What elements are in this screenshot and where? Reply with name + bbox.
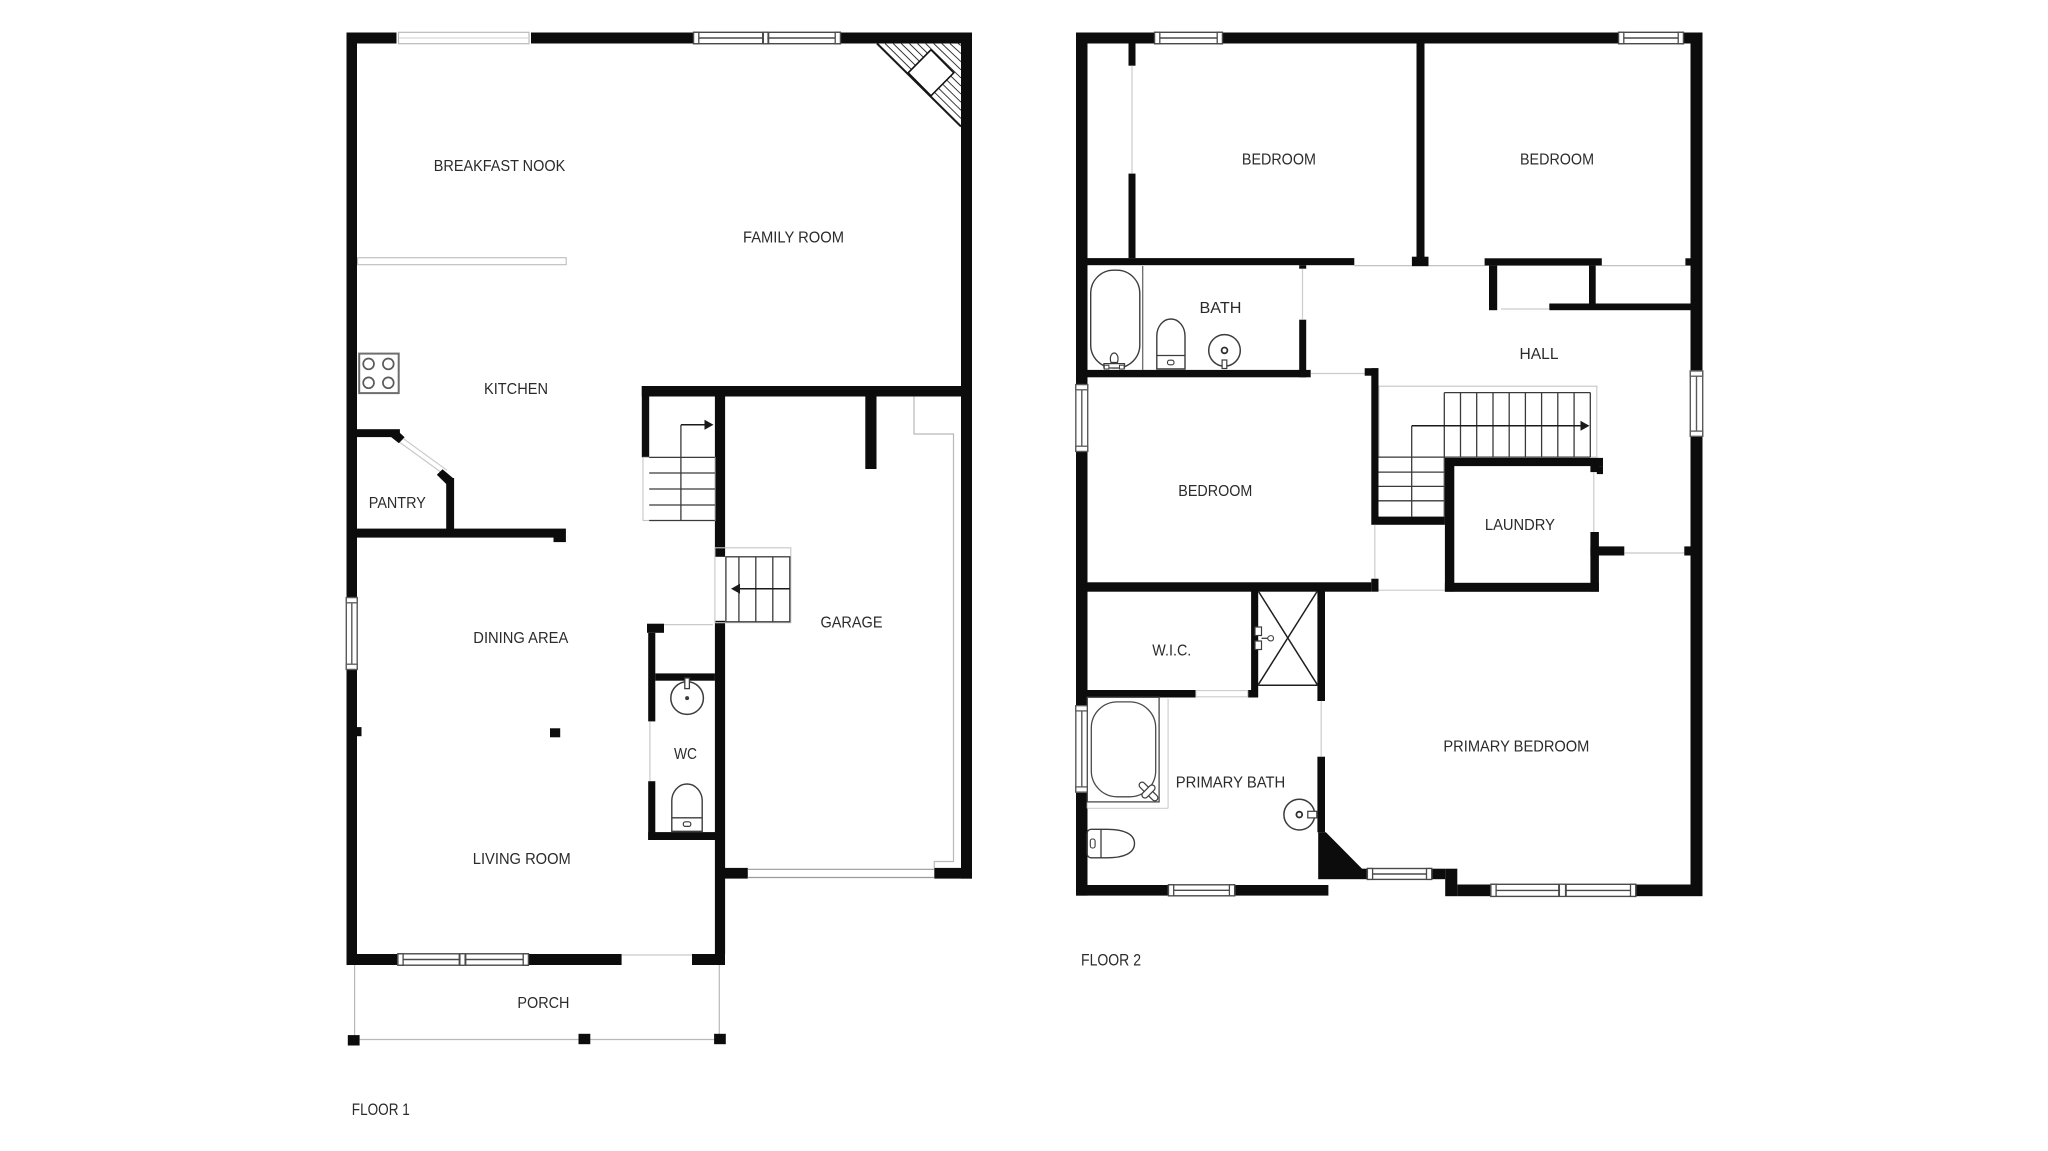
svg-text:BEDROOM: BEDROOM (1178, 483, 1252, 500)
svg-text:HALL: HALL (1520, 346, 1559, 363)
svg-text:PORCH: PORCH (517, 995, 569, 1012)
svg-text:W.I.C.: W.I.C. (1152, 642, 1191, 659)
svg-text:BATH: BATH (1200, 300, 1242, 317)
svg-text:WC: WC (674, 746, 697, 763)
svg-text:DINING AREA: DINING AREA (473, 630, 568, 647)
svg-text:LIVING ROOM: LIVING ROOM (473, 851, 571, 868)
svg-text:PANTRY: PANTRY (369, 495, 426, 512)
svg-text:GARAGE: GARAGE (821, 615, 883, 632)
svg-text:LAUNDRY: LAUNDRY (1485, 517, 1555, 534)
svg-text:BEDROOM: BEDROOM (1242, 152, 1316, 169)
svg-text:BREAKFAST NOOK: BREAKFAST NOOK (434, 158, 566, 175)
svg-text:KITCHEN: KITCHEN (484, 381, 548, 398)
svg-text:FAMILY ROOM: FAMILY ROOM (743, 230, 844, 247)
svg-text:PRIMARY BATH: PRIMARY BATH (1176, 775, 1286, 792)
svg-text:PRIMARY BEDROOM: PRIMARY BEDROOM (1443, 739, 1589, 756)
svg-text:FLOOR 1: FLOOR 1 (352, 1100, 410, 1119)
svg-text:FLOOR 2: FLOOR 2 (1081, 951, 1141, 970)
svg-text:BEDROOM: BEDROOM (1520, 152, 1594, 169)
